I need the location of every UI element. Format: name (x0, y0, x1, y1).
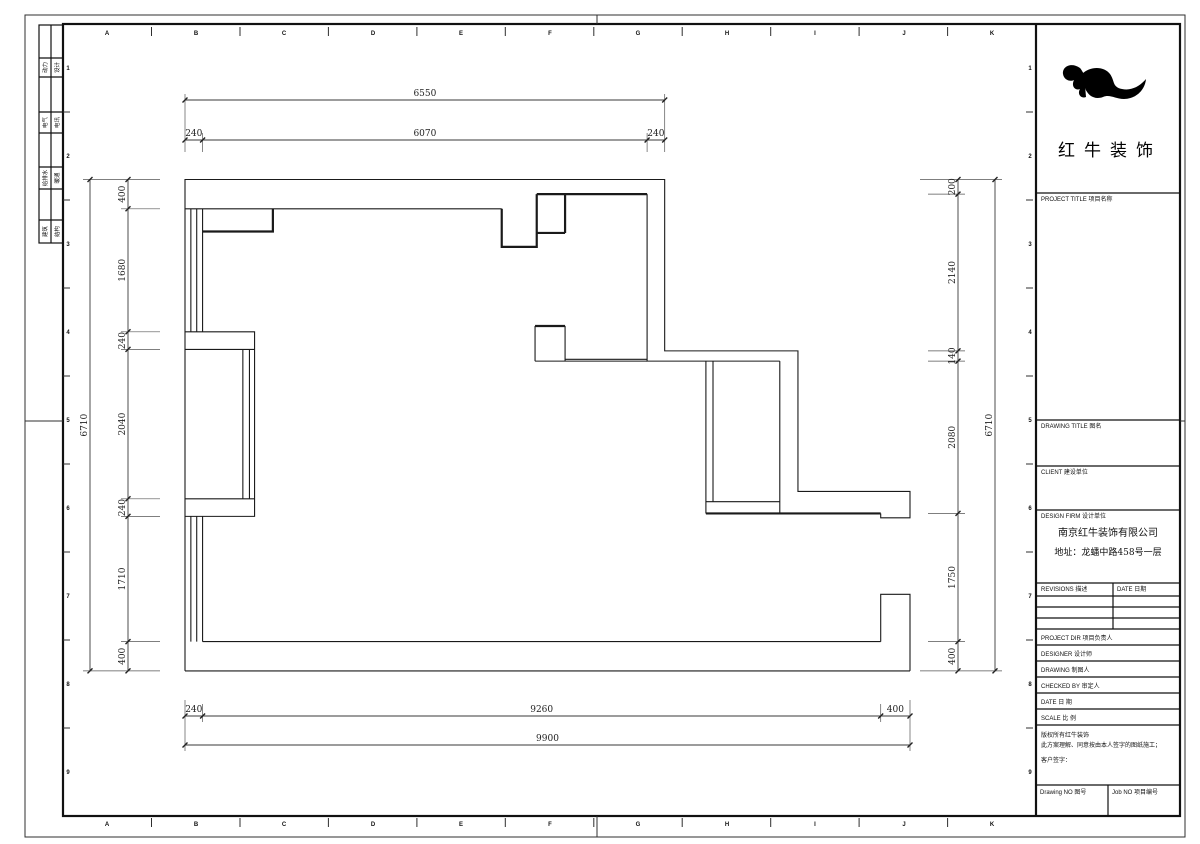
grid-number: 3 (1028, 242, 1032, 248)
revisions-label: REVISIONS 描述 (1041, 585, 1087, 593)
grid-letter: A (105, 31, 110, 37)
grid-letter: J (902, 822, 905, 828)
dimension-annotations: 6550 240 6070 240 6710 400 1680 240 2040… (80, 89, 1002, 751)
grid-number: 1 (1028, 66, 1032, 72)
project-dir-label: PROJECT DIR 项目负责人 (1041, 634, 1113, 642)
grid-letter: D (371, 31, 376, 37)
grid-number: 8 (66, 682, 70, 688)
dim-text: 6550 (413, 89, 436, 99)
dim-text: 2040 (118, 412, 128, 435)
grid-number: 1 (66, 66, 70, 72)
design-firm-label: DESIGN FIRM 设计单位 (1041, 512, 1106, 520)
copyright-line2: 此方案理解、同意按由本人签字的图纸施工； (1041, 741, 1161, 749)
grid-letter: J (902, 31, 905, 37)
dim-text: 1710 (118, 567, 128, 590)
grid-letter: G (636, 822, 641, 828)
grid-letter: K (990, 822, 995, 828)
discipline-label: 结构 (53, 226, 61, 238)
floor-plan-walls (185, 180, 910, 671)
grid-letter: B (194, 822, 199, 828)
drawing-label: DRAWING 制图人 (1041, 666, 1089, 674)
discipline-label: 电讯 (53, 117, 61, 129)
scale-label: SCALE 比 例 (1041, 714, 1076, 722)
dim-text: 2140 (948, 261, 958, 284)
dim-text: 240 (185, 705, 202, 715)
discipline-label: 设计 (53, 62, 61, 74)
dim-text: 400 (887, 705, 904, 715)
grid-letter: A (105, 822, 110, 828)
designer-label: DESIGNER 设计师 (1041, 650, 1092, 658)
dim-text: 1750 (948, 566, 958, 589)
discipline-label: 建筑 (41, 226, 49, 238)
grid-letter: G (636, 31, 641, 37)
grid-letter: D (371, 822, 376, 828)
grid-number: 9 (1028, 770, 1032, 776)
grid-row-numbers: 1 2 3 4 5 6 7 8 9 1 2 3 4 5 6 7 8 9 (63, 66, 1033, 776)
project-title-label: PROJECT TITLE 项目名称 (1041, 195, 1112, 203)
dim-text: 2080 (948, 426, 958, 449)
dim-text: 400 (118, 647, 128, 664)
grid-letter: I (814, 31, 816, 37)
company-logo-name: 红牛装饰 (1058, 141, 1162, 161)
discipline-label: 暖通 (53, 172, 61, 184)
dim-text: 240 (185, 129, 202, 139)
title-block: 红牛装饰 PROJECT TITLE 项目名称 DRAWING TITLE 图名… (1036, 65, 1180, 816)
grid-letter: C (282, 31, 287, 37)
grid-letter: B (194, 31, 199, 37)
grid-number: 7 (66, 594, 70, 600)
design-firm-name: 南京红牛装饰有限公司 (1058, 526, 1158, 539)
date-label: DATE 日 期 (1041, 698, 1072, 706)
date-column-label: DATE 日期 (1117, 585, 1146, 593)
design-firm-address: 地址：龙蟠中路458号一层 (1054, 546, 1161, 558)
drawing-sheet: 动力 设计 电气 电讯 给排水 暖通 建筑 结构 A B C D E F G H… (0, 0, 1200, 844)
discipline-label: 给排水 (41, 169, 49, 186)
grid-number: 4 (66, 330, 70, 336)
checked-by-label: CHECKED BY 审定人 (1041, 682, 1100, 690)
grid-letter: F (548, 31, 552, 37)
dim-text: 1680 (118, 259, 128, 282)
drawing-title-label: DRAWING TITLE 图名 (1041, 422, 1101, 430)
grid-number: 2 (1028, 154, 1032, 160)
grid-number: 6 (1028, 506, 1032, 512)
dim-text: 240 (118, 332, 128, 349)
grid-letter: I (814, 822, 816, 828)
grid-letter: F (548, 822, 552, 828)
grid-number: 5 (1028, 418, 1032, 424)
copyright-line3: 客户签字： (1041, 756, 1071, 764)
dim-text: 240 (647, 129, 664, 139)
grid-number: 4 (1028, 330, 1032, 336)
dim-text: 240 (118, 499, 128, 516)
grid-number: 8 (1028, 682, 1032, 688)
drawing-no-label: Drawing NO 图号 (1040, 789, 1086, 796)
grid-letter: E (459, 31, 463, 37)
dim-text: 400 (118, 185, 128, 202)
grid-number: 6 (66, 506, 70, 512)
dim-text: 9260 (530, 705, 553, 715)
dim-text: 400 (948, 647, 958, 664)
discipline-label: 动力 (41, 62, 49, 73)
grid-number: 7 (1028, 594, 1032, 600)
dim-text: 6710 (985, 413, 995, 436)
grid-number: 5 (66, 418, 70, 424)
grid-letter: H (725, 822, 729, 828)
redbull-swoosh-icon (1063, 65, 1146, 99)
discipline-signoff-strip: 动力 设计 电气 电讯 给排水 暖通 建筑 结构 (39, 25, 63, 243)
grid-number: 9 (66, 770, 70, 776)
copyright-line1: 版权所有红牛装饰 (1041, 731, 1089, 739)
grid-letter: H (725, 31, 729, 37)
cad-canvas: 动力 设计 电气 电讯 给排水 暖通 建筑 结构 A B C D E F G H… (0, 0, 1200, 844)
dim-text: 6710 (80, 413, 90, 436)
discipline-label: 电气 (41, 117, 49, 129)
job-no-label: Job NO 项目编号 (1112, 788, 1158, 796)
dim-text: 6070 (413, 129, 436, 139)
dim-text: 140 (948, 347, 958, 364)
grid-letter: E (459, 822, 463, 828)
dim-text: 9900 (536, 734, 559, 744)
grid-letter: K (990, 31, 995, 37)
grid-number: 2 (66, 154, 70, 160)
client-label: CLIENT 建设单位 (1041, 468, 1088, 476)
dim-text: 200 (948, 178, 958, 195)
grid-number: 3 (66, 242, 70, 248)
grid-letter: C (282, 822, 287, 828)
